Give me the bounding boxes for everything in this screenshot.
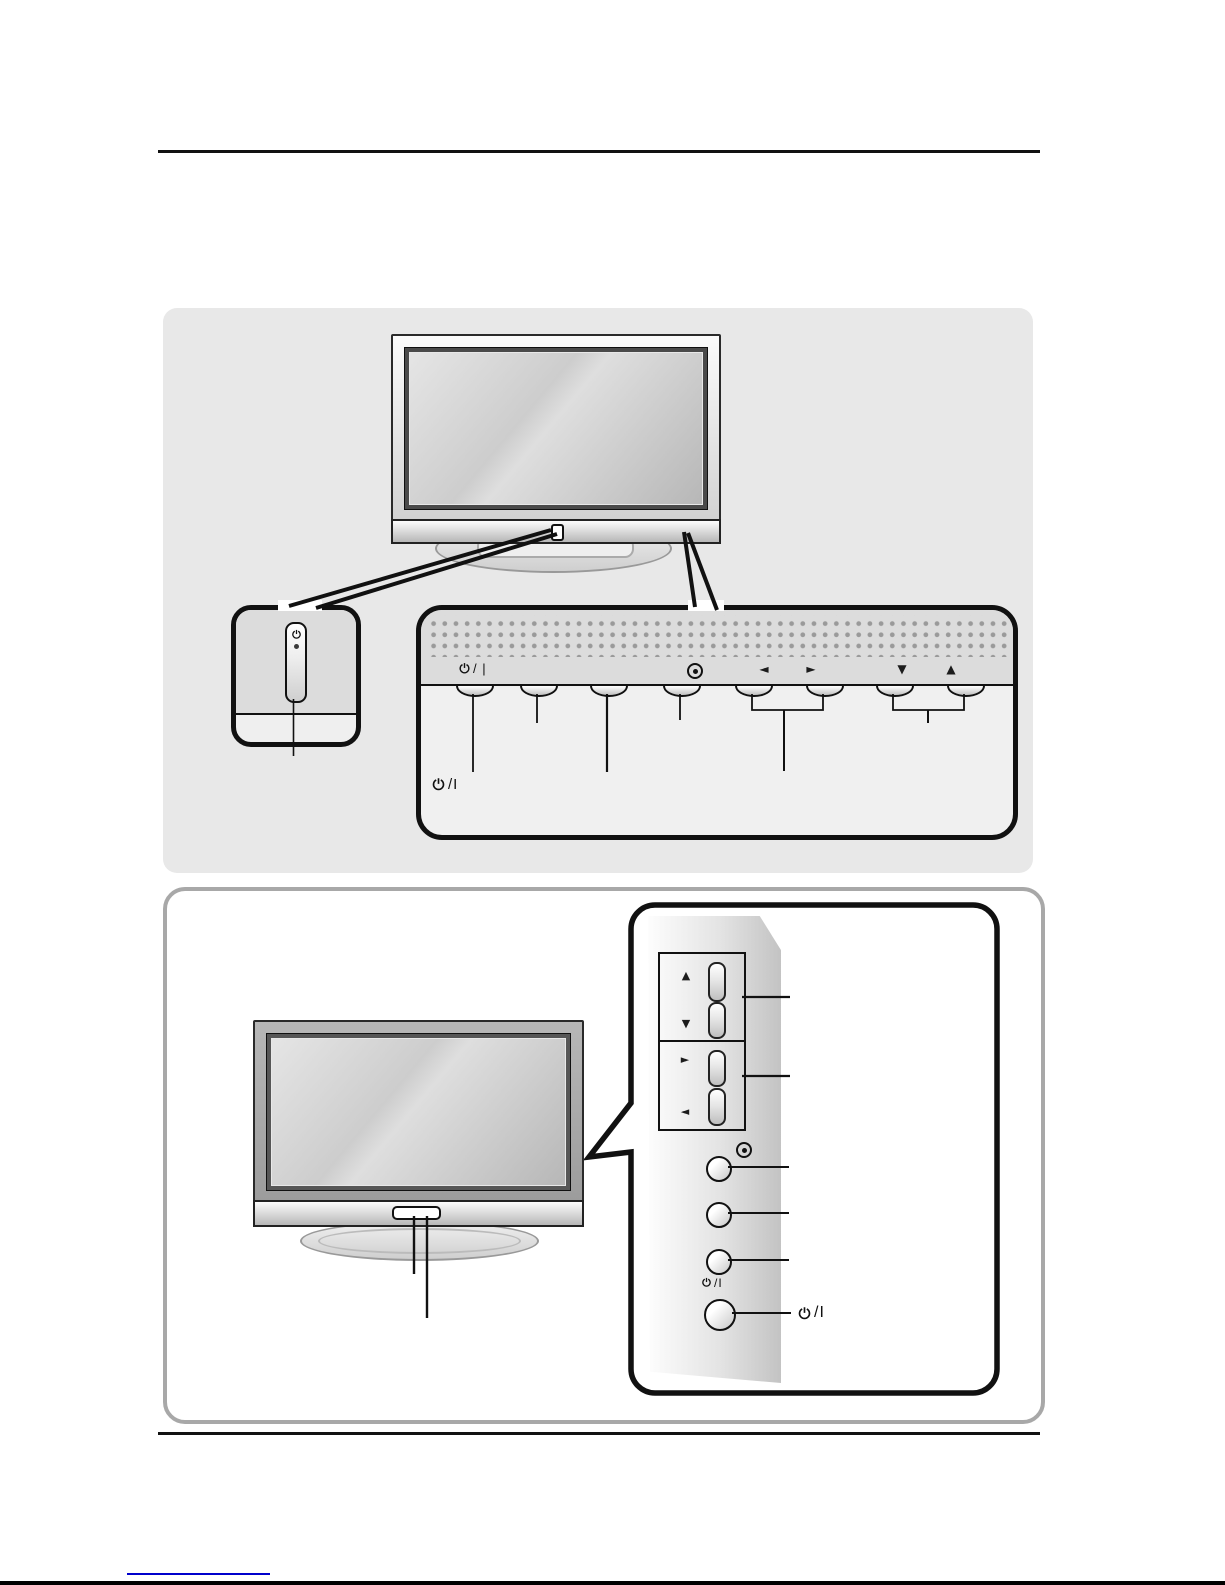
- power-button: [704, 1299, 736, 1331]
- page-edge-bar: [0, 1581, 1225, 1585]
- power-label: /I: [701, 1276, 723, 1289]
- power-caption: /I: [431, 776, 458, 793]
- speaker-grille: [425, 615, 1009, 657]
- tv-bezel: [404, 347, 708, 510]
- arrow-left-icon: ◄: [755, 662, 773, 676]
- arrow-up-icon: ▲: [678, 970, 694, 982]
- bottom-rule: [158, 1432, 1040, 1435]
- main-power-button: [285, 622, 307, 703]
- volume-up-button: [708, 1050, 726, 1087]
- ok-dot-center: [693, 669, 698, 674]
- ok-dot-icon: [687, 663, 703, 679]
- programme-down-button: [708, 1002, 726, 1039]
- arrow-right-icon: ►: [802, 662, 820, 676]
- ok-dot-center: [742, 1148, 747, 1153]
- input-button: [706, 1249, 732, 1275]
- power-icon: [797, 1306, 812, 1321]
- led-icon: [294, 644, 299, 649]
- volume-down-button: [708, 1088, 726, 1126]
- control-strip-face: [421, 610, 1013, 684]
- power-icon: [431, 777, 446, 792]
- tv-screen: [271, 1038, 566, 1186]
- arrow-up-icon: ▲: [942, 662, 960, 676]
- ok-button: [706, 1156, 732, 1182]
- front-control-strip-panel: [416, 605, 1018, 840]
- manual-page: / | ◄ ► ▼ ▲ /I ▲ ▼ ► ◄: [0, 0, 1225, 1585]
- power-label-text: /I: [714, 1276, 723, 1290]
- power-label-text: / |: [473, 661, 487, 676]
- arrow-down-icon: ▼: [678, 1018, 694, 1030]
- tv-front-illustration: [391, 334, 721, 523]
- arrow-down-icon: ▼: [893, 662, 911, 676]
- arrow-right-icon: ►: [677, 1054, 693, 1066]
- power-icon: [458, 662, 471, 675]
- programme-up-button: [708, 962, 726, 1002]
- top-rule: [158, 150, 1040, 153]
- programme-rocker-box: [658, 952, 746, 1042]
- tv-screen: [409, 352, 703, 505]
- power-icon: [701, 1277, 712, 1288]
- sensor-window: [392, 1206, 441, 1220]
- callout-gap: [688, 600, 724, 611]
- power-caption-text: /I: [814, 1304, 825, 1322]
- link-underline[interactable]: [127, 1573, 270, 1575]
- callout-gap: [278, 600, 322, 611]
- volume-rocker-box: [658, 1040, 746, 1131]
- tv-stand-detail: [318, 1228, 521, 1254]
- ok-dot-icon: [736, 1142, 752, 1158]
- strip-edge-line: [421, 684, 1013, 686]
- power-icon: [291, 629, 302, 640]
- sensor-window: [551, 524, 564, 541]
- menu-button: [706, 1202, 732, 1228]
- tv-front-illustration: [253, 1020, 584, 1204]
- arrow-left-icon: ◄: [677, 1106, 693, 1118]
- power-label: / |: [458, 661, 487, 676]
- tv-bezel: [266, 1033, 571, 1191]
- power-caption: /I: [797, 1304, 825, 1322]
- power-caption-text: /I: [448, 776, 458, 793]
- panel-divider: [236, 713, 356, 715]
